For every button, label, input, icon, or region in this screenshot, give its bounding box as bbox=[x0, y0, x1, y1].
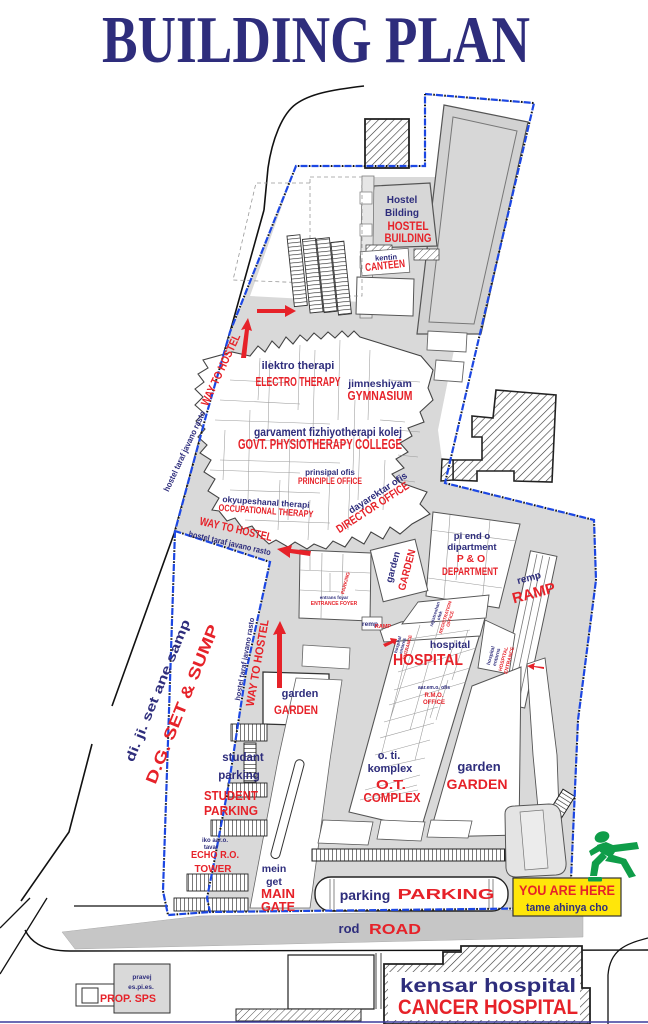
svg-text:STUDENT: STUDENT bbox=[204, 788, 258, 803]
svg-text:PRINCIPLE OFFICE: PRINCIPLE OFFICE bbox=[298, 476, 362, 486]
svg-text:DEPARTMENT: DEPARTMENT bbox=[442, 566, 498, 578]
svg-text:aar.em.o. ofis: aar.em.o. ofis bbox=[418, 685, 450, 691]
svg-text:BUILDING PLAN: BUILDING PLAN bbox=[102, 3, 530, 77]
svg-text:dipartment: dipartment bbox=[447, 542, 497, 553]
svg-text:parking: parking bbox=[218, 770, 260, 782]
svg-text:entrans foyar: entrans foyar bbox=[320, 595, 349, 600]
svg-text:garden: garden bbox=[457, 759, 500, 774]
svg-text:pi end o: pi end o bbox=[454, 531, 491, 542]
svg-text:HOSTEL: HOSTEL bbox=[388, 221, 429, 233]
svg-text:ROAD: ROAD bbox=[369, 921, 421, 938]
svg-text:MAIN: MAIN bbox=[261, 887, 295, 901]
svg-text:hospital: hospital bbox=[430, 639, 470, 651]
svg-text:PARKING: PARKING bbox=[204, 803, 258, 818]
svg-text:R.M.O.: R.M.O. bbox=[425, 693, 444, 699]
svg-text:es.pi.es.: es.pi.es. bbox=[128, 984, 154, 991]
svg-text:YOU ARE HERE: YOU ARE HERE bbox=[519, 883, 615, 898]
svg-text:PARKING: PARKING bbox=[398, 886, 495, 903]
svg-text:GYMNASIUM: GYMNASIUM bbox=[348, 389, 413, 403]
svg-text:RAMP: RAMP bbox=[375, 624, 392, 630]
svg-text:HOSPITAL: HOSPITAL bbox=[393, 652, 463, 669]
svg-text:GARDEN: GARDEN bbox=[447, 776, 508, 792]
svg-text:Bilding: Bilding bbox=[385, 208, 419, 219]
svg-text:ECHO R.O.: ECHO R.O. bbox=[191, 849, 239, 861]
svg-text:ELECTRO THERAPY: ELECTRO THERAPY bbox=[256, 375, 341, 389]
svg-text:o. ti.: o. ti. bbox=[378, 750, 401, 762]
svg-text:tame ahinya cho: tame ahinya cho bbox=[526, 902, 608, 914]
svg-text:GOVT. PHYSIOTHERAPY COLLEGE: GOVT. PHYSIOTHERAPY COLLEGE bbox=[238, 437, 402, 453]
svg-text:GATE: GATE bbox=[261, 900, 295, 914]
svg-text:TOWER: TOWER bbox=[195, 863, 232, 875]
svg-text:studant: studant bbox=[222, 752, 264, 764]
svg-text:kensar hospital: kensar hospital bbox=[400, 976, 576, 997]
svg-text:rod: rod bbox=[339, 921, 360, 936]
svg-text:mein: mein bbox=[262, 863, 287, 875]
svg-text:Hostel: Hostel bbox=[387, 195, 418, 206]
svg-text:iko aar.o.: iko aar.o. bbox=[202, 838, 228, 844]
svg-text:pravej: pravej bbox=[132, 974, 151, 981]
svg-text:PROP. SPS: PROP. SPS bbox=[100, 993, 156, 1005]
svg-text:ENTRANCE FOYER: ENTRANCE FOYER bbox=[311, 601, 358, 607]
svg-text:COMPLEX: COMPLEX bbox=[364, 790, 421, 805]
svg-text:BUILDING: BUILDING bbox=[385, 233, 432, 245]
svg-text:komplex: komplex bbox=[368, 763, 414, 775]
svg-text:OFFICE: OFFICE bbox=[423, 700, 445, 706]
svg-text:CANCER HOSPITAL: CANCER HOSPITAL bbox=[398, 996, 578, 1019]
svg-text:garden: garden bbox=[282, 688, 319, 700]
svg-text:GARDEN: GARDEN bbox=[274, 705, 318, 717]
svg-text:ilektro therapi: ilektro therapi bbox=[262, 360, 335, 372]
svg-text:parking: parking bbox=[340, 887, 391, 903]
svg-text:P & O: P & O bbox=[457, 553, 485, 565]
